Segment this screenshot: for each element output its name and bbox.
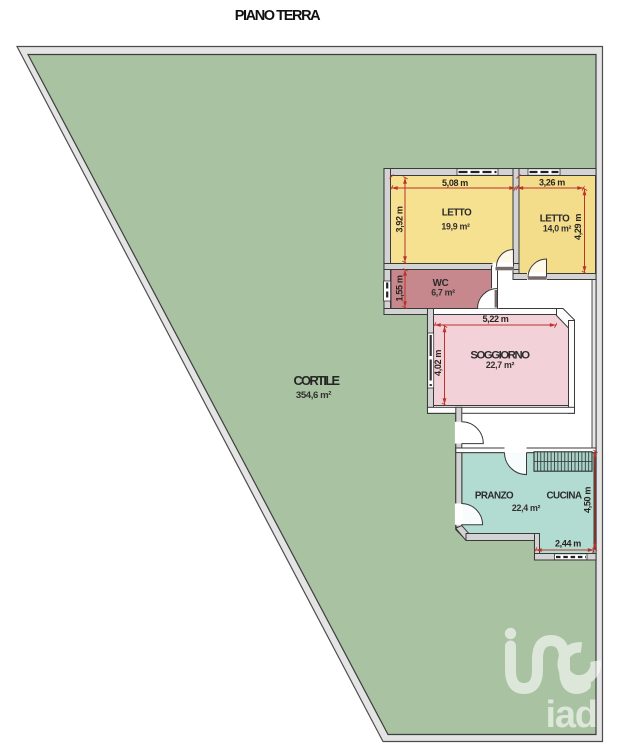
svg-text:3,26 m: 3,26 m	[539, 178, 565, 188]
svg-text:5,22 m: 5,22 m	[483, 314, 509, 324]
svg-text:22,4 m²: 22,4 m²	[512, 503, 541, 513]
svg-text:1,55 m: 1,55 m	[395, 275, 405, 301]
svg-text:19,9 m²: 19,9 m²	[441, 222, 470, 232]
svg-text:14,0 m²: 14,0 m²	[543, 224, 572, 234]
svg-text:LETTO: LETTO	[442, 208, 472, 219]
svg-text:PIANO TERRA: PIANO TERRA	[235, 8, 321, 24]
svg-text:4,50 m: 4,50 m	[583, 487, 593, 513]
svg-text:PRANZO: PRANZO	[475, 491, 514, 502]
svg-text:4,02 m: 4,02 m	[433, 350, 443, 376]
svg-text:6,7 m²: 6,7 m²	[431, 288, 455, 298]
svg-text:iad: iad	[546, 694, 597, 736]
svg-text:5,08 m: 5,08 m	[442, 178, 468, 188]
svg-text:22,7 m²: 22,7 m²	[486, 360, 515, 370]
svg-text:CORTILE: CORTILE	[294, 373, 341, 388]
svg-text:2,44 m: 2,44 m	[555, 539, 581, 549]
svg-text:CUCINA: CUCINA	[546, 491, 582, 502]
svg-text:354,6 m²: 354,6 m²	[296, 390, 331, 401]
svg-text:4,29 m: 4,29 m	[573, 214, 583, 240]
svg-text:3,92 m: 3,92 m	[395, 206, 405, 232]
